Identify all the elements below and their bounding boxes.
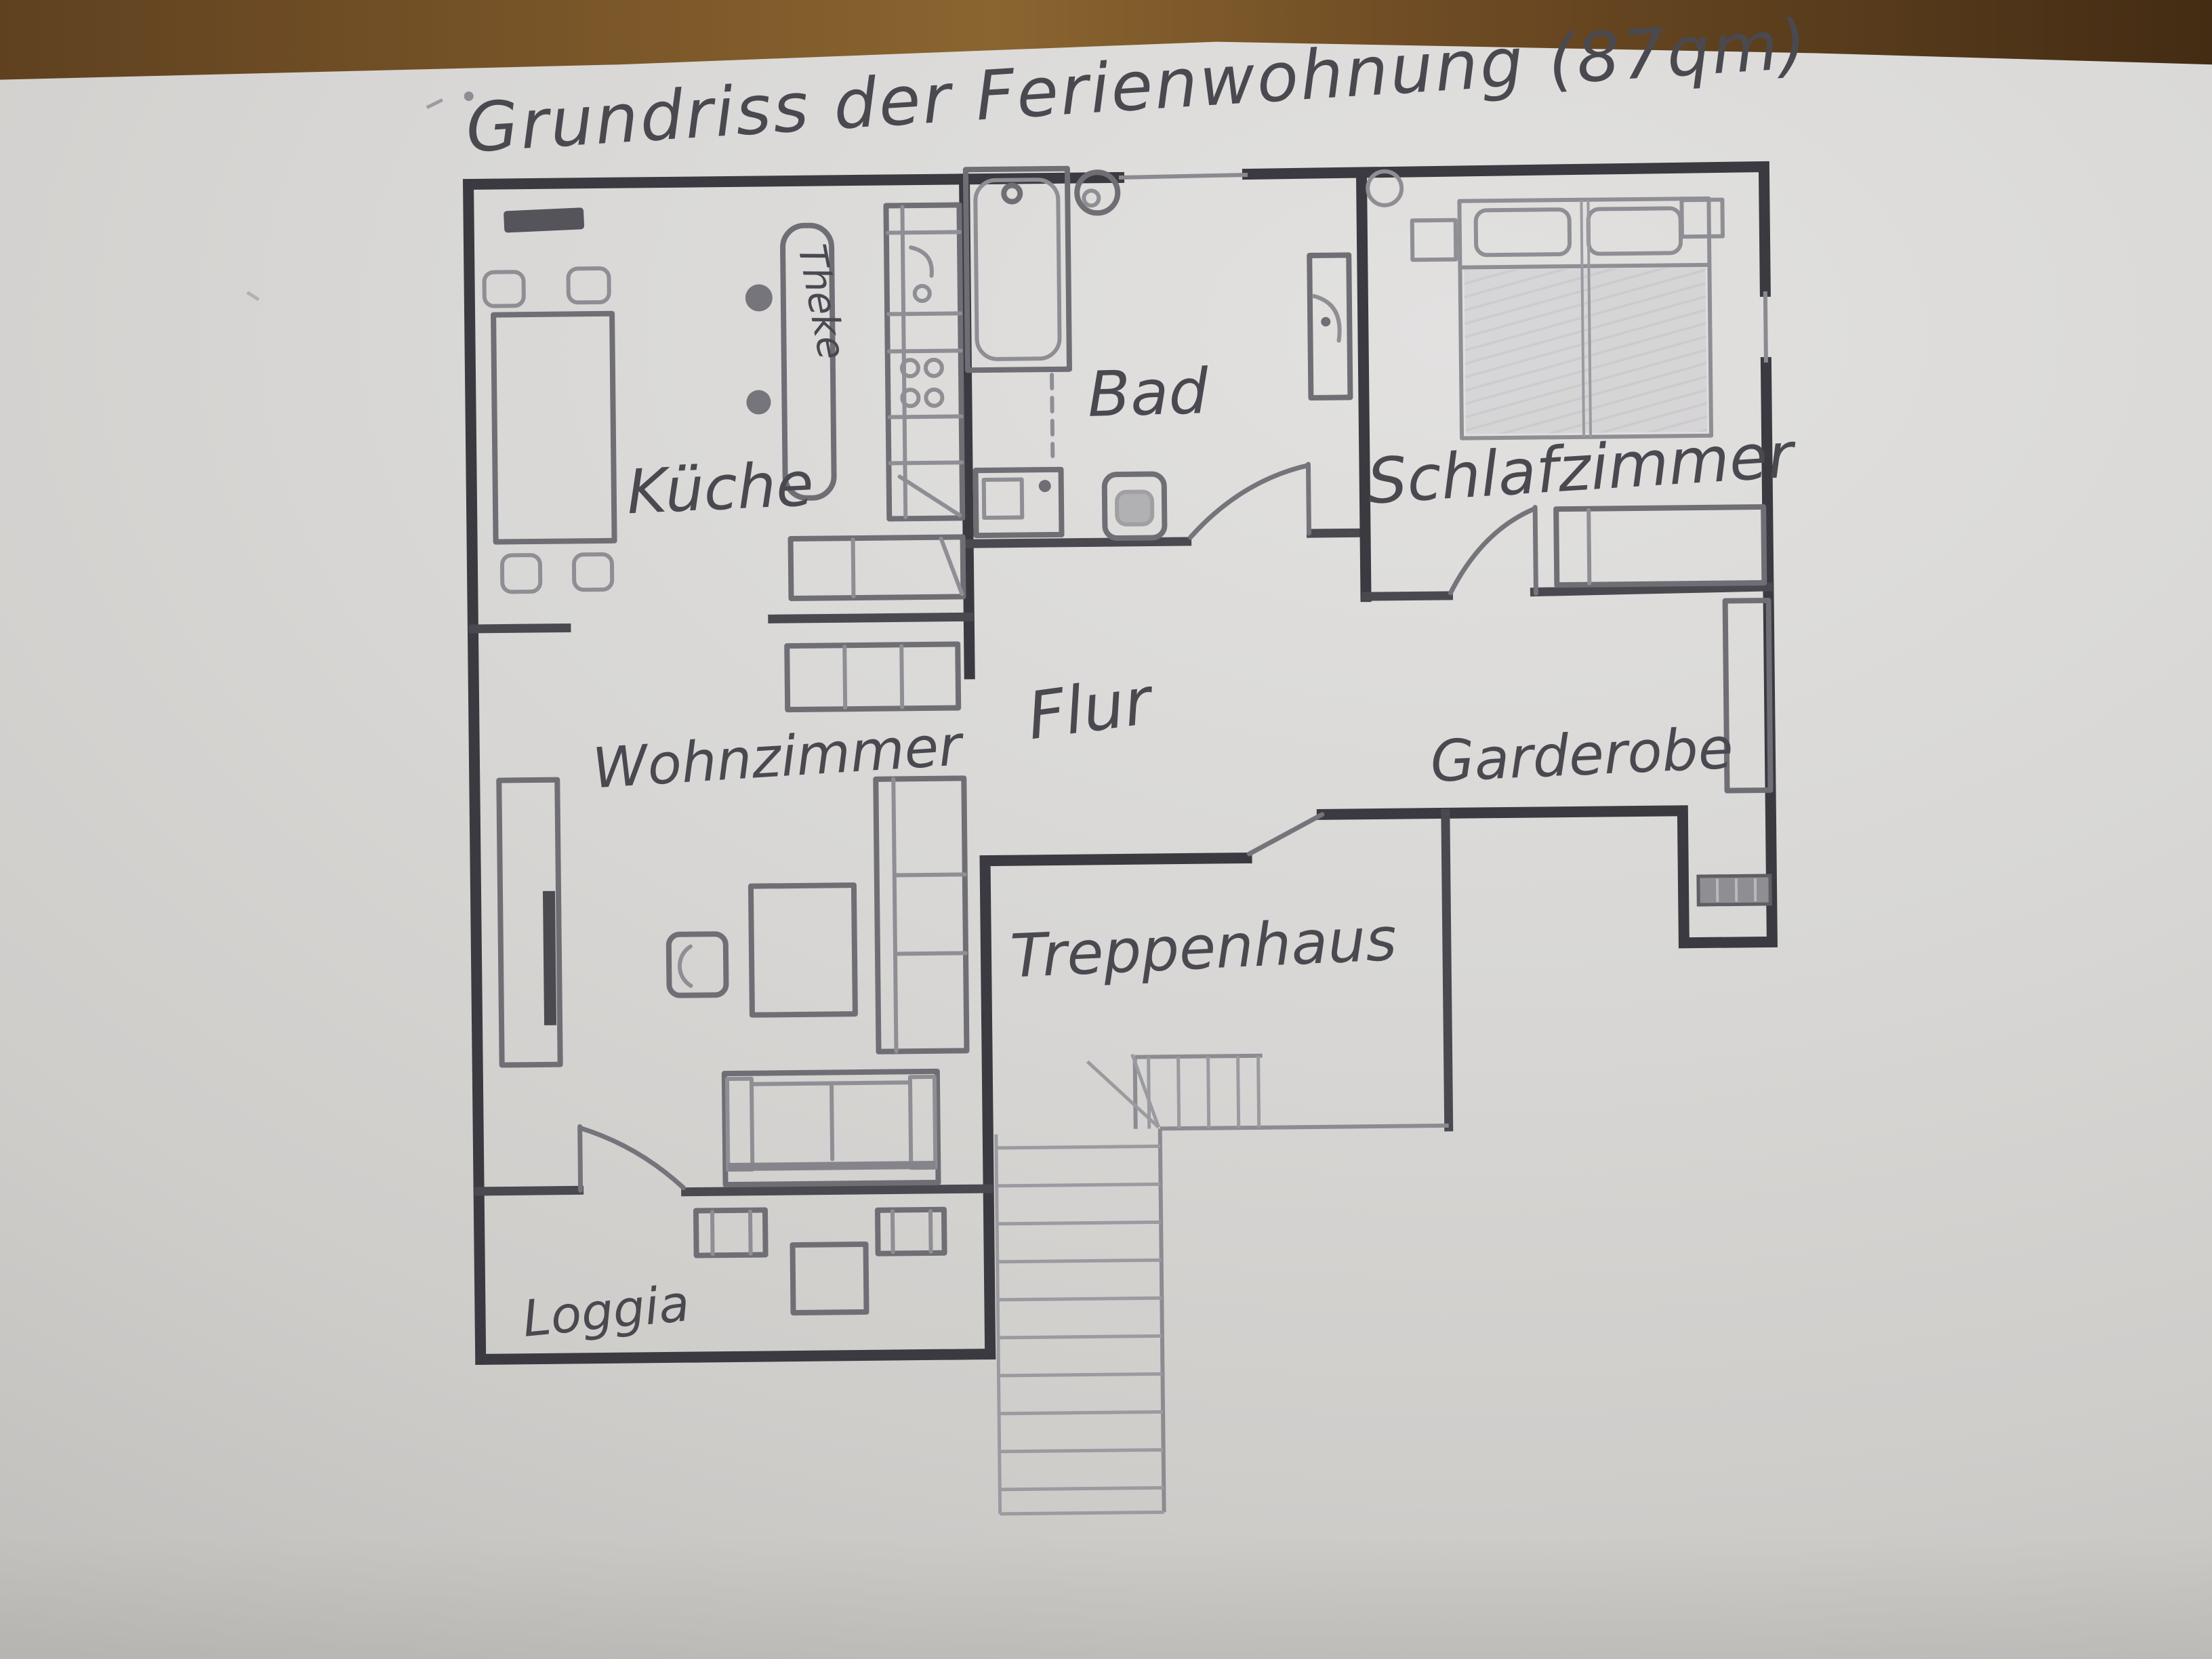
sideboard-flur (787, 644, 958, 710)
door-schlafzimmer (1450, 508, 1536, 594)
page-title: Grundriss der Ferienwohnung (87qm) (464, 5, 1811, 168)
stair-treads-lower (996, 1146, 1164, 1490)
doormat (1698, 876, 1770, 905)
drain (1004, 185, 1020, 201)
room-loggia: Loggia (519, 1208, 945, 1349)
door-bad (1189, 464, 1309, 537)
label-bad: Bad (1086, 355, 1209, 431)
stair-landing-line (1160, 1126, 1449, 1128)
bathtub (966, 169, 1069, 371)
loggia-table (792, 1244, 866, 1313)
room-kueche: Theke (483, 205, 964, 712)
stair-treads-upper (1149, 1056, 1259, 1129)
photo-of-floor-plan: { "title": "Grundriss der Ferienwohnung … (0, 0, 2212, 1659)
dining-table (493, 314, 614, 542)
wardrobe (1556, 507, 1764, 585)
room-treppenhaus: Treppenhaus (994, 903, 1452, 1514)
label-treppenhaus: Treppenhaus (1009, 904, 1398, 991)
label-loggia: Loggia (520, 1274, 693, 1349)
coffee-table (751, 885, 855, 1015)
kitchen-counter-column (886, 205, 962, 518)
tv (543, 891, 556, 1025)
sink (915, 286, 930, 301)
label-garderobe: Garderobe (1429, 715, 1734, 795)
room-wohnzimmer: Wohnzimmer (498, 714, 970, 1187)
faucet (911, 247, 932, 276)
loggia-chair (696, 1210, 766, 1255)
label-wohnzimmer: Wohnzimmer (591, 714, 966, 801)
nightstand (1412, 220, 1456, 260)
corner-diagonal (900, 476, 960, 516)
double-bed (1459, 199, 1711, 438)
washbasin (976, 470, 1062, 535)
photo-shadow (0, 1537, 2212, 1659)
chair (484, 272, 524, 306)
shower-screen-dashed (1052, 375, 1052, 456)
label-kueche: Küche (626, 449, 815, 528)
corner-washbasin (1309, 255, 1350, 398)
stray-pencil-marks (245, 91, 476, 300)
wall-loggia-right (686, 1189, 989, 1192)
nightstand (1681, 200, 1723, 237)
wall-kueche-bottom-right (773, 617, 969, 619)
wall-schlafzimmer-left (1361, 175, 1366, 596)
label-schlafzimmer: Schlafzimmer (1366, 419, 1799, 518)
loggia-chair (878, 1210, 945, 1254)
wall-loggia-left (479, 1190, 579, 1191)
door-loggia (580, 1126, 684, 1191)
stairs (996, 1051, 1453, 1514)
wall-schlafzimmer-bottom-left (1366, 596, 1449, 596)
bar-stool (745, 284, 773, 311)
stair-run-right (1160, 1128, 1164, 1512)
label-flur: Flur (1023, 662, 1159, 754)
kitchen-counter-bottom (791, 537, 964, 598)
door-wohnung-eingang (1249, 815, 1323, 854)
chair (574, 554, 613, 590)
window-schlafzimmer-right (1765, 291, 1766, 363)
pillow (1589, 208, 1681, 253)
couch (724, 1071, 939, 1185)
stove-burners (902, 360, 943, 407)
armchair (669, 934, 726, 996)
shelf-unit (876, 778, 966, 1051)
room-flur: Flur (1023, 662, 1159, 754)
pillow (1476, 209, 1570, 255)
wall-schlafzimmer-bottom-right (1534, 587, 1768, 592)
window-bad-top (1119, 175, 1248, 178)
wall-treppenhaus-right (1446, 813, 1449, 1127)
tv-lowboard (499, 780, 560, 1065)
doors (573, 462, 1542, 1191)
floor-plan-drawing: Grundriss der Ferienwohnung (87qm) (0, 0, 2212, 1659)
theke-label: Theke (789, 241, 853, 363)
wall-kueche-bottom-left (473, 628, 567, 629)
room-schlafzimmer: Schlafzimmer (1362, 167, 1799, 587)
chair (568, 268, 609, 303)
room-bad: Bad (966, 165, 1352, 539)
toilet (1105, 474, 1165, 538)
stair-run-left (996, 1134, 1000, 1514)
wall-bad-bottom (968, 541, 1187, 544)
chair (502, 555, 541, 592)
wall-bad-bottom-stub (1311, 533, 1366, 533)
bar-stool (746, 390, 771, 414)
room-garderobe: Garderobe (1428, 600, 1772, 907)
window-marker-kueche (504, 207, 584, 232)
